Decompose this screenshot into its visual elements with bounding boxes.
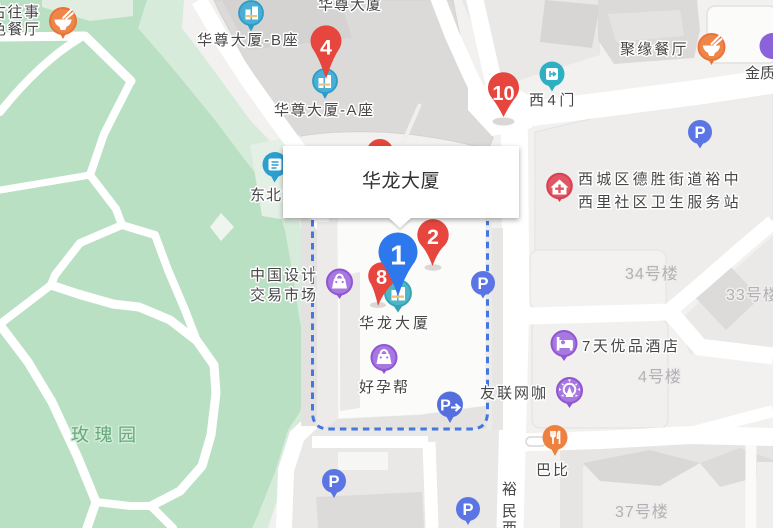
svg-text:P: P bbox=[477, 275, 488, 293]
svg-text:裕: 裕 bbox=[502, 481, 517, 498]
svg-text:37号楼: 37号楼 bbox=[615, 503, 669, 521]
svg-text:民: 民 bbox=[502, 503, 517, 520]
svg-text:4号楼: 4号楼 bbox=[638, 368, 682, 386]
svg-text:巴比: 巴比 bbox=[536, 462, 570, 479]
svg-text:33号楼: 33号楼 bbox=[726, 286, 773, 304]
svg-text:好孕帮: 好孕帮 bbox=[359, 379, 410, 396]
svg-text:1: 1 bbox=[390, 240, 406, 271]
svg-text:2: 2 bbox=[427, 225, 439, 249]
svg-text:P: P bbox=[694, 124, 705, 142]
svg-text:华尊大厦: 华尊大厦 bbox=[318, 0, 382, 14]
svg-text:P: P bbox=[462, 501, 473, 519]
svg-text:聚缘餐厅: 聚缘餐厅 bbox=[620, 41, 689, 58]
svg-text:4: 4 bbox=[320, 36, 332, 60]
svg-text:西城区德胜街道裕中: 西城区德胜街道裕中 bbox=[578, 170, 742, 188]
svg-text:10: 10 bbox=[492, 83, 514, 105]
svg-text:P: P bbox=[328, 473, 339, 491]
svg-text:西4门: 西4门 bbox=[529, 92, 578, 109]
svg-text:34号楼: 34号楼 bbox=[625, 265, 679, 283]
svg-text:7天优品酒店: 7天优品酒店 bbox=[582, 338, 680, 355]
svg-text:中国设计: 中国设计 bbox=[250, 267, 318, 284]
svg-text:友联网咖: 友联网咖 bbox=[480, 385, 548, 402]
svg-text:华龙大厦: 华龙大厦 bbox=[359, 315, 431, 332]
svg-text:交易市场: 交易市场 bbox=[250, 286, 318, 304]
svg-text:色餐厅: 色餐厅 bbox=[0, 21, 41, 38]
svg-text:P: P bbox=[440, 398, 451, 415]
svg-text:西: 西 bbox=[502, 520, 517, 528]
svg-text:金质: 金质 bbox=[745, 65, 773, 82]
svg-text:8: 8 bbox=[376, 267, 387, 289]
svg-text:古往事: 古往事 bbox=[0, 4, 41, 21]
svg-text:西里社区卫生服务站: 西里社区卫生服务站 bbox=[578, 194, 742, 211]
svg-text:玫瑰园: 玫瑰园 bbox=[71, 425, 142, 445]
svg-text:华尊大厦-A座: 华尊大厦-A座 bbox=[274, 102, 375, 119]
svg-text:华尊大厦-B座: 华尊大厦-B座 bbox=[197, 32, 300, 49]
